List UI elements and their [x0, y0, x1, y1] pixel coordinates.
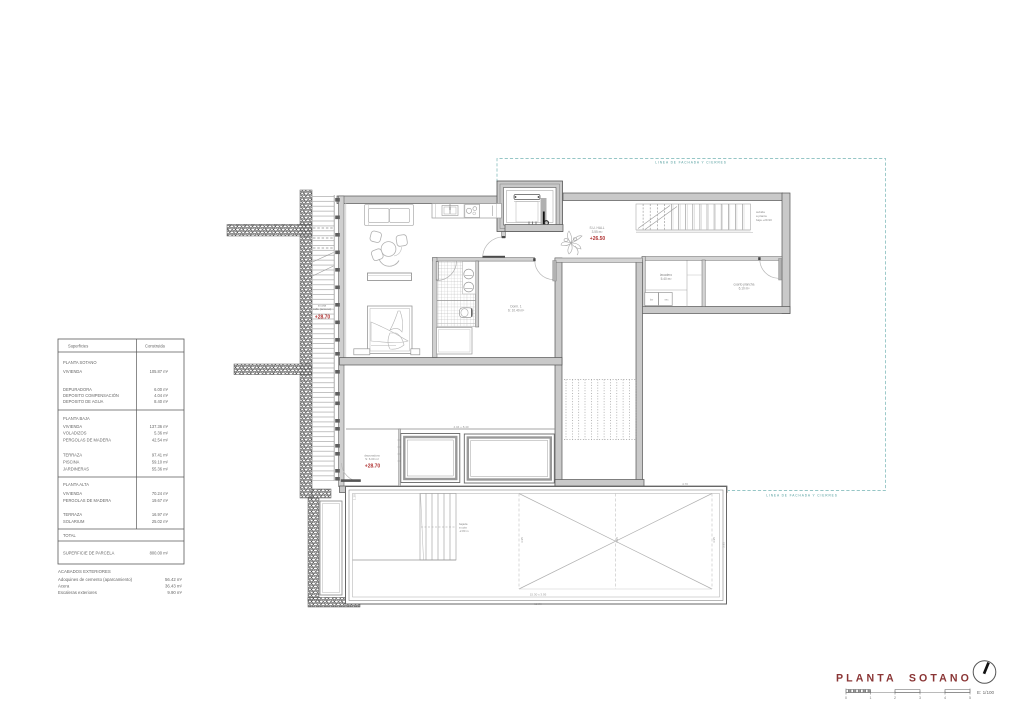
svg-text:JARDINERAS: JARDINERAS — [63, 467, 89, 472]
svg-text:3.95: 3.95 — [615, 537, 619, 543]
svg-text:Escaleras exteriores: Escaleras exteriores — [58, 590, 97, 595]
svg-text:19.67 m²: 19.67 m² — [152, 498, 169, 503]
svg-text:15.30: 15.30 — [534, 602, 542, 606]
svg-text:VOLADIZOS: VOLADIZOS — [63, 431, 87, 436]
svg-text:5.36 m²: 5.36 m² — [154, 431, 169, 436]
svg-text:137.36 m²: 137.36 m² — [150, 424, 169, 429]
svg-text:PLANTA BAJA: PLANTA BAJA — [63, 416, 90, 421]
svg-text:1: 1 — [870, 696, 872, 700]
svg-text:97.41 m²: 97.41 m² — [152, 453, 169, 458]
svg-text:SUPERFICIE DE PARCELA: SUPERFICIE DE PARCELA — [63, 551, 115, 556]
svg-text:25.02 m²: 25.02 m² — [152, 519, 169, 524]
svg-text:SOLARIUM: SOLARIUM — [63, 519, 85, 524]
svg-text:Construida: Construida — [145, 344, 166, 349]
svg-text:ACABADOS EXTERIORES: ACABADOS EXTERIORES — [58, 569, 111, 574]
svg-text:DEPOSITO DE AGUA: DEPOSITO DE AGUA — [63, 399, 104, 404]
svg-text:4.70: 4.70 — [682, 482, 688, 486]
svg-text:Acera: Acera — [58, 584, 70, 589]
svg-text:9.90 m²: 9.90 m² — [167, 590, 182, 595]
svg-text:TERRAZA: TERRAZA — [63, 453, 82, 458]
svg-text:PLANTA SOTANO: PLANTA SOTANO — [836, 673, 972, 685]
svg-text:VIVIENDA: VIVIENDA — [63, 491, 82, 496]
svg-text:TOTAL: TOTAL — [63, 533, 77, 538]
svg-text:TERRAZA: TERRAZA — [63, 512, 82, 517]
svg-text:15.30 x 3.95: 15.30 x 3.95 — [530, 593, 547, 597]
svg-text:6.10 m²: 6.10 m² — [739, 287, 750, 291]
svg-text:sec: sec — [664, 299, 669, 302]
svg-text:1.20: 1.20 — [353, 494, 357, 500]
svg-text:VIVIENDA: VIVIENDA — [63, 424, 82, 429]
svg-text:E: 1/100: E: 1/100 — [977, 690, 995, 695]
svg-text:S: 10.40 m²: S: 10.40 m² — [508, 309, 524, 313]
svg-text:5.40 m²: 5.40 m² — [661, 277, 672, 281]
svg-text:3.55 m²: 3.55 m² — [592, 230, 603, 234]
svg-text:4.04 + 8.40: 4.04 + 8.40 — [453, 425, 468, 429]
svg-text:+28.70: +28.70 — [315, 315, 331, 321]
svg-text:2: 2 — [894, 696, 896, 700]
svg-text:PLANTA ALTA: PLANTA ALTA — [63, 482, 89, 487]
svg-text:3: 3 — [919, 696, 921, 700]
svg-text:Adoquines de cemento (aparcami: Adoquines de cemento (aparcamiento) — [58, 577, 133, 582]
svg-text:Superficies: Superficies — [68, 344, 88, 349]
svg-text:105.87 m²: 105.87 m² — [150, 369, 169, 374]
svg-text:59.10 m²: 59.10 m² — [152, 460, 169, 465]
svg-text:4: 4 — [944, 696, 946, 700]
svg-text:PISCINA: PISCINA — [63, 460, 80, 465]
svg-text:-2.80 m: -2.80 m — [459, 529, 469, 533]
svg-text:PERGOLAS DE MADERA: PERGOLAS DE MADERA — [63, 438, 111, 443]
svg-text:800.00 m²: 800.00 m² — [150, 551, 169, 556]
svg-text:3.95: 3.95 — [520, 537, 524, 543]
svg-text:LINEA DE FACHADA Y CIERRES: LINEA DE FACHADA Y CIERRES — [655, 161, 726, 165]
svg-text:3.95: 3.95 — [722, 542, 726, 548]
svg-text:4.04 m²: 4.04 m² — [154, 393, 169, 398]
svg-text:0: 0 — [845, 696, 847, 700]
svg-text:70.24 m²: 70.24 m² — [152, 491, 169, 496]
svg-text:+26.50: +26.50 — [590, 236, 606, 242]
svg-text:55.36 m²: 55.36 m² — [152, 467, 169, 472]
svg-text:8.40 m²: 8.40 m² — [154, 399, 169, 404]
svg-text:DEPOSITO COMPENSACIÓN: DEPOSITO COMPENSACIÓN — [63, 393, 119, 398]
svg-text:S: 6.00 m²: S: 6.00 m² — [365, 457, 379, 461]
svg-text:56.42 m²: 56.42 m² — [165, 577, 183, 582]
svg-text:VIVIENDA: VIVIENDA — [63, 369, 82, 374]
svg-text:6.00 m²: 6.00 m² — [154, 387, 169, 392]
svg-text:42.54 m²: 42.54 m² — [152, 438, 169, 443]
svg-text:36.43 m²: 36.43 m² — [165, 584, 183, 589]
svg-text:+28.70: +28.70 — [365, 464, 381, 470]
svg-text:PLANTA SOTANO: PLANTA SOTANO — [63, 360, 97, 365]
svg-text:16.97 m²: 16.97 m² — [152, 512, 169, 517]
svg-text:3.95: 3.95 — [712, 537, 716, 543]
svg-text:PERGOLAS DE MADERA: PERGOLAS DE MADERA — [63, 498, 111, 503]
svg-text:calle (acceso): calle (acceso) — [313, 307, 332, 311]
svg-text:5: 5 — [969, 696, 971, 700]
svg-text:LINEA DE FACHADA Y CIERRES: LINEA DE FACHADA Y CIERRES — [766, 494, 837, 498]
svg-text:DEPURADORA: DEPURADORA — [63, 387, 92, 392]
svg-text:baja +29.90: baja +29.90 — [756, 218, 772, 222]
